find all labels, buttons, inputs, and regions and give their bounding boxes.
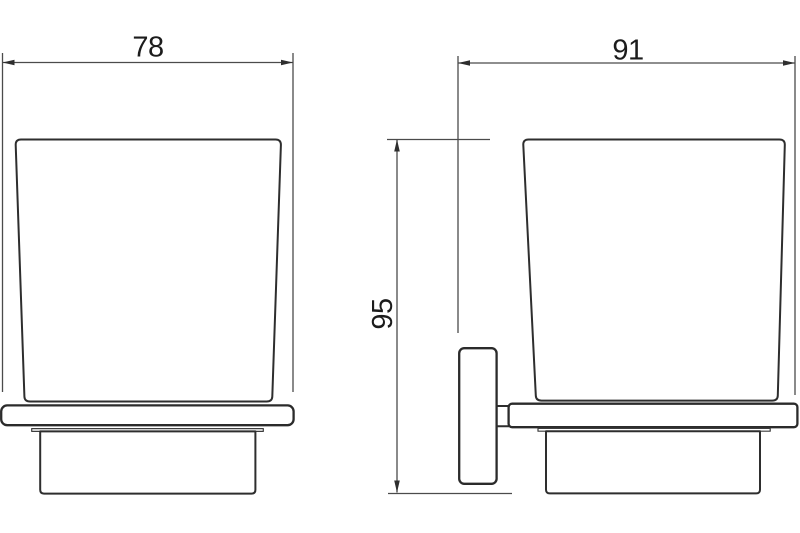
width-arrowhead-right — [281, 60, 293, 66]
depth-dimension-label: 91 — [612, 35, 643, 67]
front-holder-plate — [1, 405, 293, 425]
wall-mount-plate — [459, 348, 496, 484]
dimension-front-width: 78 — [3, 32, 294, 393]
side-glass-tumbler-outline — [523, 140, 785, 401]
height-arrowhead-top — [394, 140, 400, 152]
front-view — [1, 140, 293, 494]
depth-arrowhead-left — [458, 60, 470, 66]
height-arrowhead-bottom — [394, 481, 400, 493]
side-holder-bar — [509, 404, 798, 428]
depth-arrowhead-right — [783, 60, 795, 66]
technical-drawing-page: 78 91 95 — [0, 0, 800, 533]
dimension-height: 95 — [367, 140, 512, 494]
tumbler-holder-dimension-drawing: 78 91 95 — [0, 0, 800, 533]
width-arrowhead-left — [3, 60, 15, 66]
front-glass-tumbler-outline — [16, 140, 281, 402]
side-glass-base — [546, 431, 760, 493]
front-glass-base — [40, 431, 255, 493]
height-dimension-label: 95 — [367, 298, 399, 329]
side-view — [459, 140, 797, 494]
width-dimension-label: 78 — [132, 32, 163, 64]
dimension-side-depth: 91 — [458, 35, 795, 396]
